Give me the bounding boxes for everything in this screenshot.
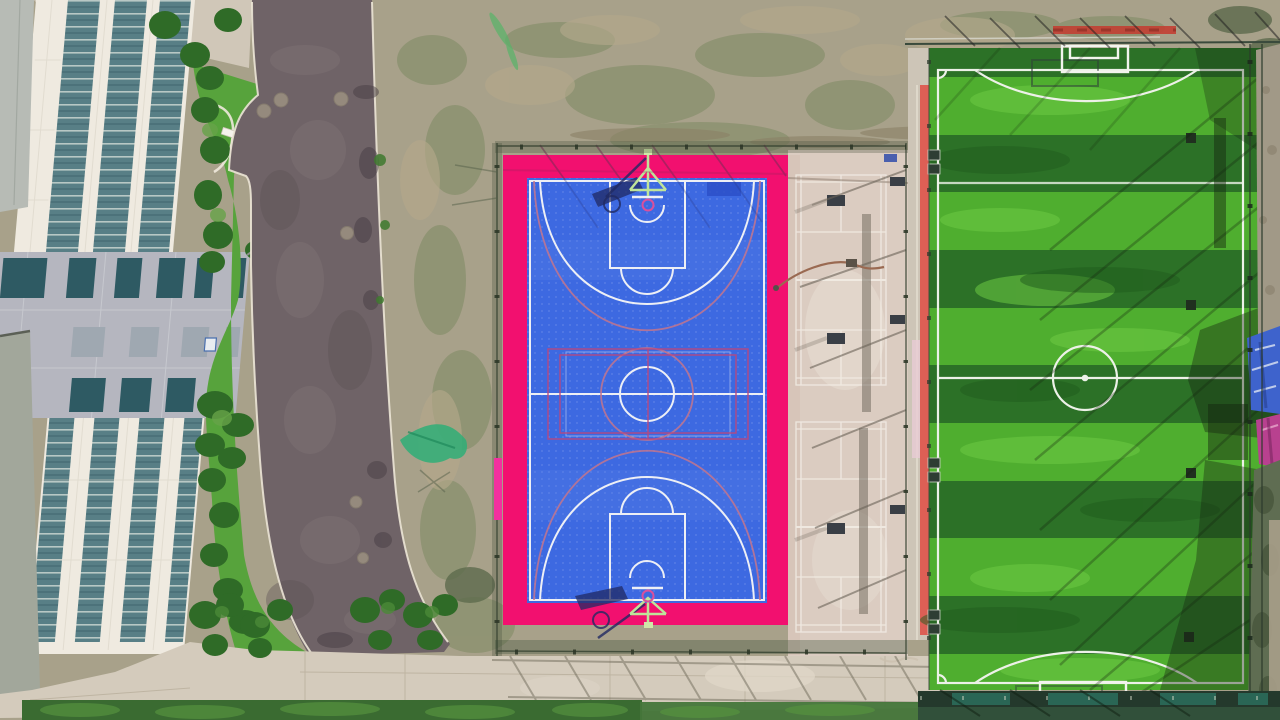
- aerial-photo: [0, 0, 1280, 720]
- multiuse-area: [773, 150, 908, 656]
- side-strip: [908, 48, 929, 640]
- building-plaque: [204, 338, 216, 351]
- basketball-court: [503, 145, 788, 638]
- pink-mat: [494, 458, 502, 520]
- soccer-field: [920, 46, 1280, 710]
- bottom-band: [918, 690, 1280, 720]
- blue-bin: [884, 154, 897, 162]
- aerial-photo-canvas: [0, 0, 1280, 720]
